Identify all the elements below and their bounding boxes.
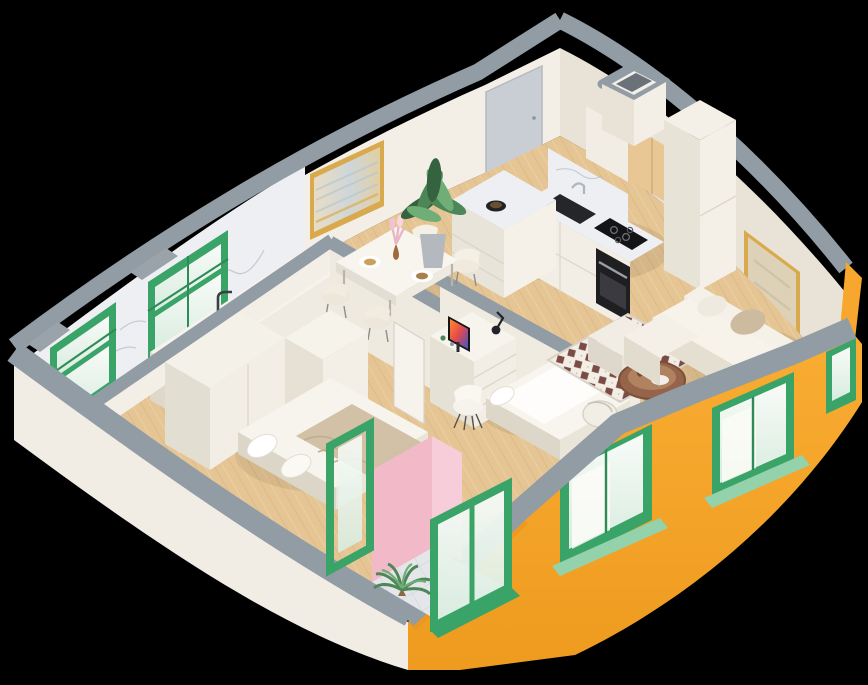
desk-mug	[450, 342, 454, 346]
pan-food	[490, 202, 502, 208]
desk-plant	[440, 335, 445, 340]
bedroom1-door	[394, 322, 424, 424]
apartment-isometric-render	[0, 0, 868, 685]
plate-food	[364, 259, 376, 266]
door-handle	[532, 116, 536, 120]
render-canvas	[0, 0, 868, 685]
plant-pot	[420, 234, 446, 268]
tall-cabinet	[664, 100, 736, 290]
plate-food	[416, 273, 428, 280]
